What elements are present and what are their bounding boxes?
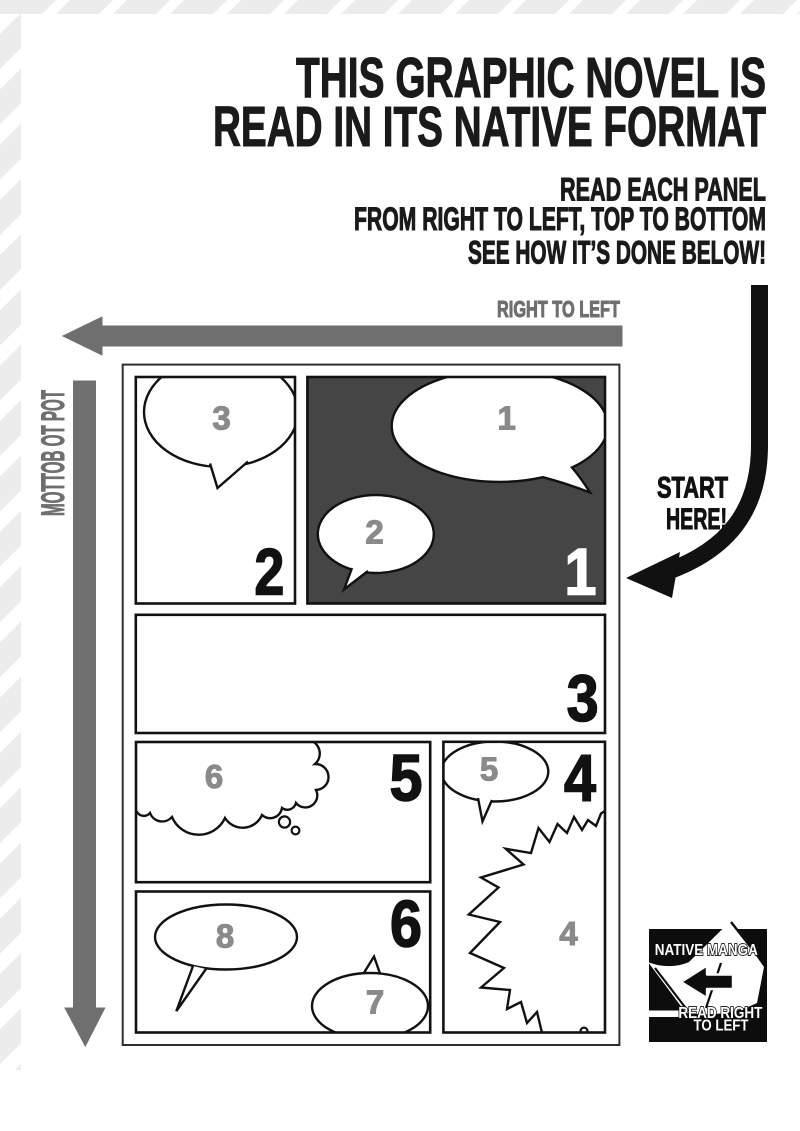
svg-text:SEE HOW IT’S DONE BELOW!: SEE HOW IT’S DONE BELOW! [468, 235, 766, 271]
svg-text:HERE!: HERE! [666, 503, 727, 536]
svg-text:5: 5 [480, 751, 498, 788]
svg-text:2: 2 [254, 534, 284, 608]
svg-text:MOTTOB OT POT: MOTTOB OT POT [35, 390, 71, 516]
svg-text:1: 1 [565, 534, 597, 608]
svg-text:7: 7 [366, 984, 384, 1021]
svg-text:NATIVE MANGA: NATIVE MANGA [655, 942, 758, 959]
svg-text:3: 3 [567, 661, 599, 735]
svg-text:4: 4 [564, 740, 596, 814]
svg-text:2: 2 [365, 514, 383, 551]
svg-text:START: START [657, 472, 728, 505]
svg-text:TO LEFT: TO LEFT [694, 1018, 749, 1035]
svg-text:6: 6 [205, 758, 223, 795]
svg-text:6: 6 [390, 887, 422, 961]
svg-text:RIGHT TO LEFT: RIGHT TO LEFT [497, 296, 620, 322]
svg-text:1: 1 [498, 400, 516, 437]
svg-text:READ IN ITS NATIVE FORMAT: READ IN ITS NATIVE FORMAT [213, 95, 766, 159]
svg-text:8: 8 [216, 918, 234, 955]
svg-text:4: 4 [559, 915, 578, 952]
svg-text:3: 3 [212, 400, 230, 437]
svg-text:5: 5 [390, 740, 423, 814]
svg-text:FROM RIGHT TO LEFT, TOP TO BOT: FROM RIGHT TO LEFT, TOP TO BOTTOM [354, 201, 766, 237]
